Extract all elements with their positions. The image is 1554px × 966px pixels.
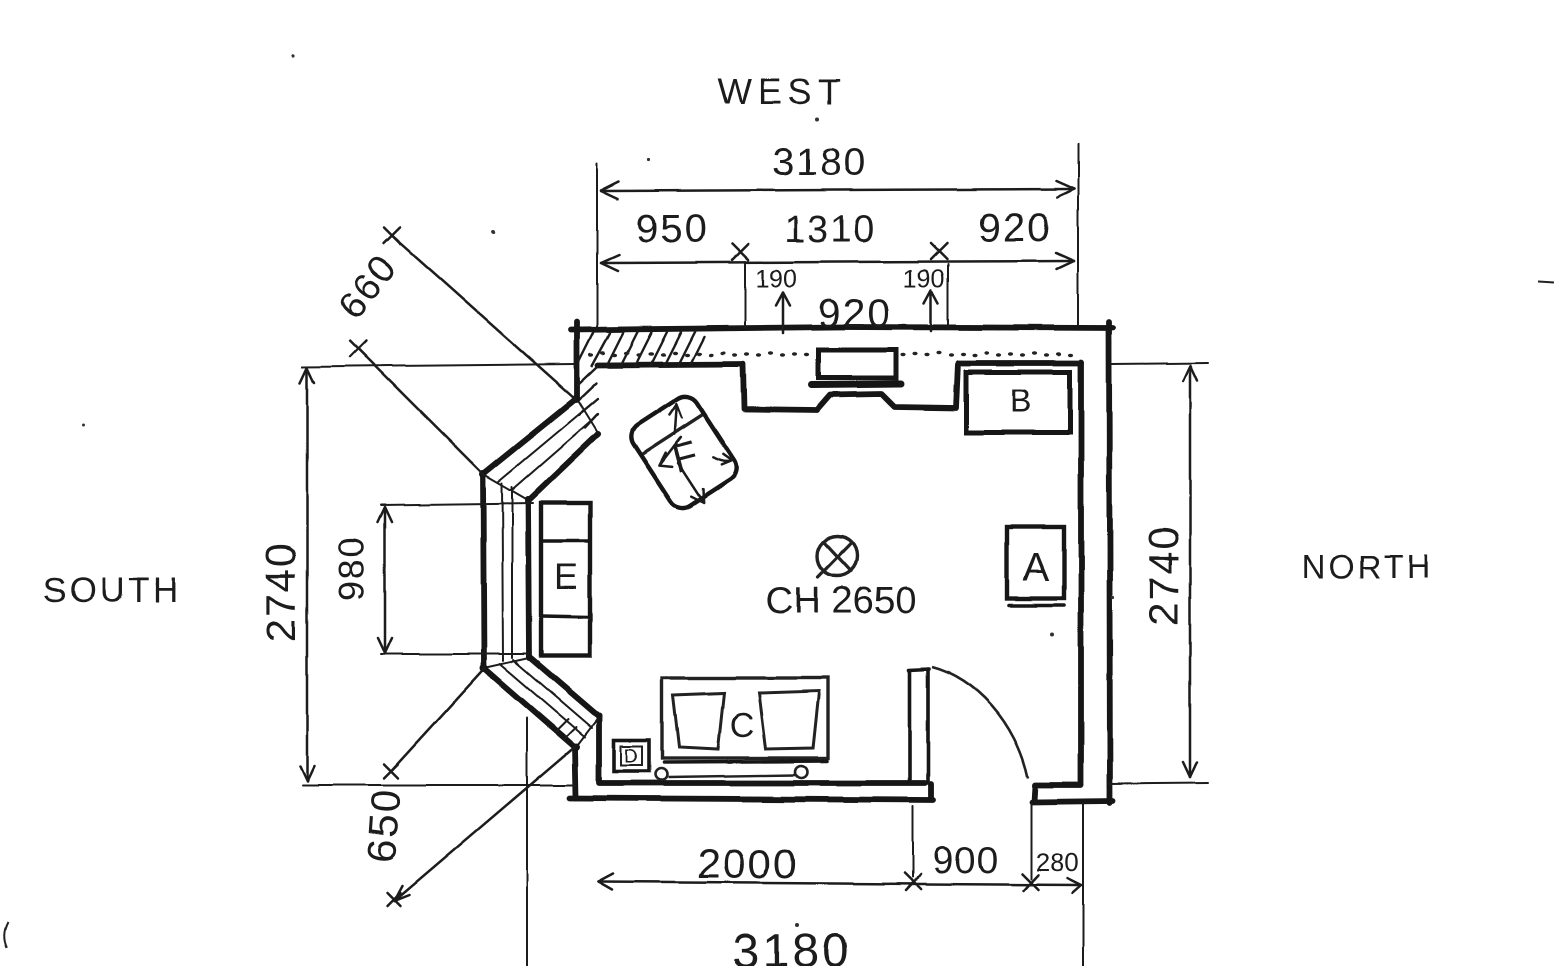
svg-text:920: 920 (979, 206, 1052, 250)
svg-text:2740: 2740 (257, 541, 304, 642)
svg-text:3180: 3180 (733, 925, 852, 966)
svg-text:D: D (624, 746, 638, 767)
svg-text:A: A (1023, 545, 1050, 589)
svg-text:SOUTH: SOUTH (43, 571, 181, 610)
svg-text:C: C (730, 707, 755, 745)
svg-text:3180: 3180 (773, 141, 868, 184)
svg-text:980: 980 (331, 535, 372, 601)
svg-text:950: 950 (636, 207, 709, 251)
svg-text:2000: 2000 (697, 840, 798, 887)
svg-text:WEST: WEST (718, 71, 846, 112)
svg-text:CH 2650: CH 2650 (766, 580, 916, 622)
svg-text:B: B (1010, 382, 1032, 419)
svg-text:920: 920 (818, 290, 892, 336)
svg-text:190: 190 (903, 265, 945, 293)
svg-text:E: E (554, 556, 578, 597)
svg-text:650: 650 (358, 786, 409, 863)
svg-text:1310: 1310 (784, 209, 877, 251)
svg-text:190: 190 (755, 265, 797, 293)
svg-text:280: 280 (1035, 847, 1078, 877)
svg-text:900: 900 (933, 840, 999, 882)
svg-text:NORTH: NORTH (1302, 548, 1434, 585)
svg-text:2740: 2740 (1140, 524, 1187, 625)
